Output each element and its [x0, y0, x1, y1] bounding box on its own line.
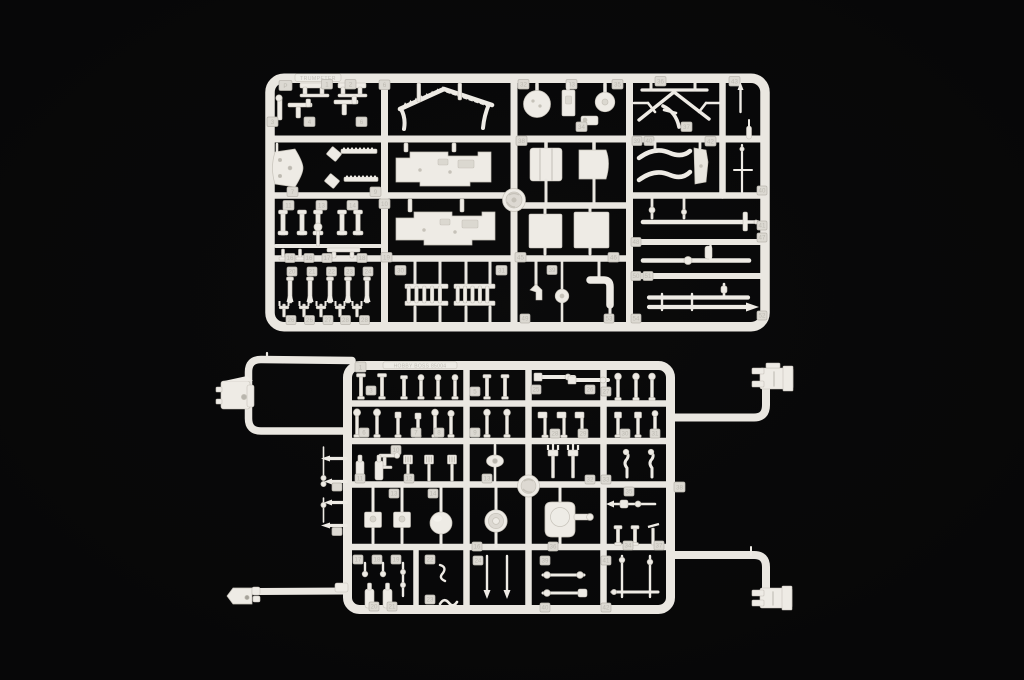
svg-text:41: 41 [603, 558, 610, 565]
svg-text:26: 26 [587, 387, 594, 394]
svg-text:37: 37 [656, 543, 663, 550]
svg-text:18: 18 [374, 557, 381, 564]
svg-text:12: 12 [406, 476, 413, 483]
svg-text:19: 19 [393, 557, 400, 564]
svg-text:22: 22 [427, 557, 434, 564]
svg-text:37: 37 [683, 124, 690, 131]
svg-text:40: 40 [646, 138, 653, 145]
svg-text:26: 26 [288, 317, 295, 324]
svg-text:5: 5 [473, 389, 477, 396]
svg-text:28: 28 [552, 431, 559, 438]
svg-text:54: 54 [633, 316, 640, 323]
svg-text:53: 53 [606, 316, 613, 323]
svg-text:7: 7 [414, 430, 418, 437]
svg-text:38: 38 [518, 138, 525, 145]
svg-text:31: 31 [498, 268, 505, 275]
svg-text:39: 39 [549, 267, 556, 274]
svg-text:47: 47 [759, 235, 766, 242]
svg-text:21: 21 [309, 269, 316, 276]
svg-text:24: 24 [365, 269, 372, 276]
svg-text:23: 23 [427, 597, 434, 604]
svg-text:39: 39 [542, 558, 549, 565]
svg-text:6: 6 [383, 82, 387, 89]
svg-text:34: 34 [578, 124, 585, 131]
svg-text:13: 13 [318, 203, 325, 210]
svg-text:52: 52 [759, 313, 766, 320]
svg-text:32: 32 [587, 477, 594, 484]
svg-text:6: 6 [362, 430, 366, 437]
svg-text:3: 3 [271, 119, 275, 126]
svg-text:35: 35 [614, 82, 621, 89]
svg-text:17: 17 [324, 255, 331, 262]
svg-text:20: 20 [289, 269, 296, 276]
svg-text:25: 25 [533, 387, 540, 394]
svg-text:42: 42 [707, 139, 714, 146]
svg-text:6: 6 [360, 119, 364, 126]
svg-text:19: 19 [383, 255, 390, 262]
svg-text:49: 49 [522, 316, 529, 323]
svg-text:46: 46 [610, 255, 617, 262]
svg-text:14: 14 [430, 491, 437, 498]
svg-text:9: 9 [473, 430, 477, 437]
svg-text:13: 13 [391, 491, 398, 498]
svg-text:17: 17 [355, 557, 362, 564]
svg-text:27: 27 [325, 317, 332, 324]
svg-text:51: 51 [645, 273, 652, 280]
svg-text:16: 16 [287, 255, 294, 262]
svg-text:HOBBY BOSS 85004: HOBBY BOSS 85004 [394, 364, 447, 370]
svg-text:39: 39 [634, 138, 641, 145]
svg-text:32: 32 [520, 82, 527, 89]
svg-text:11: 11 [285, 203, 292, 210]
svg-text:48: 48 [633, 239, 640, 246]
svg-text:2: 2 [349, 82, 353, 89]
svg-text:40: 40 [542, 605, 549, 612]
svg-text:31: 31 [652, 431, 659, 438]
svg-text:35: 35 [626, 489, 633, 496]
svg-text:14: 14 [349, 203, 356, 210]
svg-text:40: 40 [759, 188, 766, 195]
svg-text:16: 16 [474, 544, 481, 551]
svg-text:13: 13 [484, 476, 491, 483]
svg-text:27: 27 [603, 389, 610, 396]
svg-text:10: 10 [381, 201, 388, 208]
svg-text:26: 26 [306, 317, 313, 324]
svg-text:4: 4 [308, 119, 312, 126]
svg-text:18: 18 [359, 255, 366, 262]
svg-text:9: 9 [374, 189, 378, 196]
svg-text:29: 29 [580, 431, 587, 438]
svg-text:45: 45 [517, 255, 524, 262]
svg-text:11: 11 [357, 476, 364, 483]
svg-text:42: 42 [603, 605, 610, 612]
svg-text:P: P [283, 83, 287, 90]
svg-text:16: 16 [306, 255, 313, 262]
svg-text:8: 8 [437, 430, 441, 437]
svg-text:33: 33 [603, 477, 610, 484]
svg-text:50: 50 [633, 273, 640, 280]
svg-text:3: 3 [369, 388, 373, 395]
svg-text:28: 28 [361, 317, 368, 324]
svg-text:36: 36 [657, 79, 664, 86]
svg-text:22: 22 [328, 269, 335, 276]
svg-text:28: 28 [342, 317, 349, 324]
svg-text:24: 24 [475, 558, 482, 565]
svg-text:30: 30 [622, 431, 629, 438]
svg-text:41: 41 [759, 223, 766, 230]
svg-text:1: 1 [325, 82, 329, 89]
svg-text:30: 30 [397, 268, 404, 275]
svg-text:23: 23 [346, 269, 353, 276]
svg-text:38: 38 [676, 485, 683, 492]
svg-text:34: 34 [625, 543, 632, 550]
svg-text:20: 20 [371, 604, 378, 611]
svg-text:36: 36 [550, 544, 557, 551]
svg-text:1: 1 [359, 365, 363, 372]
svg-text:21: 21 [389, 604, 396, 611]
svg-text:7: 7 [291, 189, 295, 196]
svg-text:43: 43 [731, 79, 738, 86]
